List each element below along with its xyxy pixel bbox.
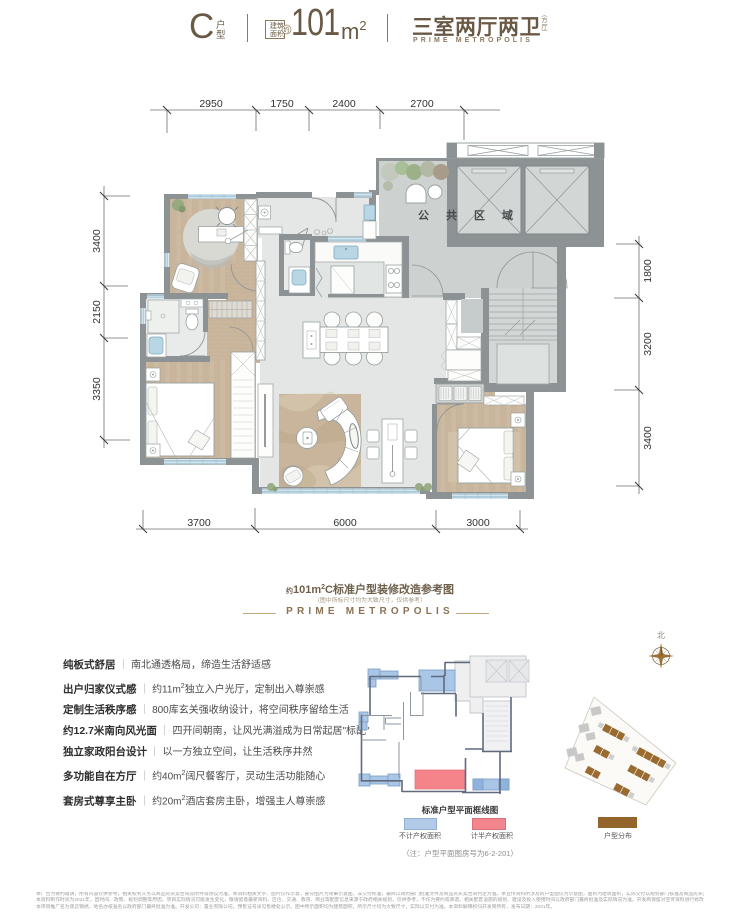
svg-text:2700: 2700: [410, 98, 434, 110]
svg-text:6000: 6000: [333, 517, 357, 529]
svg-text:建: 建: [270, 21, 277, 30]
svg-text:3200: 3200: [642, 332, 654, 356]
svg-text:2400: 2400: [332, 98, 356, 110]
svg-text:3400: 3400: [91, 229, 103, 253]
svg-text:3000: 3000: [466, 517, 490, 529]
svg-text:公共区域: 公共区域: [418, 208, 530, 222]
svg-text:2150: 2150: [91, 300, 103, 324]
svg-text:3700: 3700: [187, 517, 211, 529]
svg-text:面: 面: [270, 30, 277, 38]
svg-text:1750: 1750: [270, 98, 294, 110]
svg-text:1800: 1800: [642, 259, 654, 283]
svg-text:2950: 2950: [199, 98, 223, 110]
svg-text:3350: 3350: [91, 377, 103, 401]
svg-text:3400: 3400: [642, 426, 654, 450]
svg-text:北: 北: [657, 631, 665, 640]
svg-text:约: 约: [284, 26, 290, 34]
